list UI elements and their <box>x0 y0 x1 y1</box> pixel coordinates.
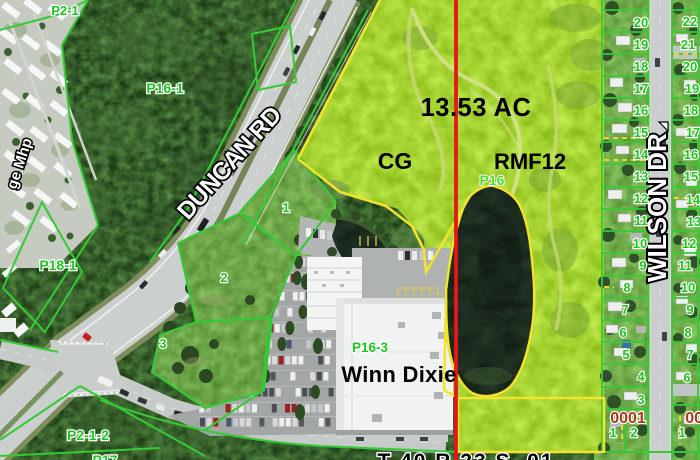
svg-text:10: 10 <box>681 280 695 295</box>
svg-text:CG: CG <box>378 148 413 174</box>
svg-text:15: 15 <box>634 125 648 140</box>
svg-text:P18-1: P18-1 <box>39 257 77 273</box>
svg-text:2: 2 <box>630 425 637 440</box>
svg-text:13.53 AC: 13.53 AC <box>421 94 532 122</box>
svg-text:20: 20 <box>634 15 648 30</box>
svg-text:7: 7 <box>686 347 693 362</box>
svg-text:17: 17 <box>686 125 700 140</box>
svg-text:16: 16 <box>684 147 698 162</box>
svg-text:8: 8 <box>684 325 691 340</box>
svg-text:17: 17 <box>634 81 648 96</box>
svg-text:2: 2 <box>220 270 227 285</box>
svg-text:20: 20 <box>683 59 697 74</box>
svg-text:12: 12 <box>682 236 696 251</box>
svg-text:6: 6 <box>619 325 626 340</box>
svg-text:3: 3 <box>637 392 644 407</box>
svg-text:Winn Dixie: Winn Dixie <box>341 362 456 387</box>
svg-text:0001: 0001 <box>610 410 646 427</box>
svg-text:1: 1 <box>678 425 685 440</box>
svg-text:10: 10 <box>633 236 647 251</box>
svg-text:18: 18 <box>684 103 698 118</box>
svg-text:18: 18 <box>634 59 648 74</box>
svg-text:P16: P16 <box>480 172 505 188</box>
svg-text:7: 7 <box>621 302 628 317</box>
svg-text:9: 9 <box>686 302 693 317</box>
svg-text:14: 14 <box>686 192 700 207</box>
svg-text:P16-1: P16-1 <box>146 80 184 96</box>
svg-text:15: 15 <box>684 169 698 184</box>
svg-text:0001: 0001 <box>685 410 700 427</box>
svg-text:P2-1-2: P2-1-2 <box>67 427 109 443</box>
svg-text:4: 4 <box>637 369 645 384</box>
svg-text:5: 5 <box>622 347 629 362</box>
svg-text:P16-3: P16-3 <box>352 340 389 355</box>
svg-text:21: 21 <box>681 37 695 52</box>
svg-text:16: 16 <box>634 103 648 118</box>
svg-text:19: 19 <box>685 81 699 96</box>
svg-text:P17: P17 <box>93 452 118 460</box>
svg-text:19: 19 <box>634 37 648 52</box>
svg-text:8: 8 <box>623 280 630 295</box>
svg-text:12: 12 <box>634 191 648 206</box>
svg-text:13: 13 <box>687 214 700 229</box>
svg-text:1: 1 <box>609 425 616 440</box>
svg-text:9: 9 <box>639 258 646 273</box>
svg-text:14: 14 <box>634 147 649 162</box>
svg-text:11: 11 <box>634 213 648 228</box>
svg-text:T 40 R 23 S 01: T 40 R 23 S 01 <box>377 450 554 460</box>
svg-text:13: 13 <box>634 169 648 184</box>
svg-text:11: 11 <box>678 258 692 273</box>
svg-text:RMF12: RMF12 <box>494 149 566 174</box>
svg-text:22: 22 <box>683 14 697 29</box>
svg-text:3: 3 <box>159 336 166 351</box>
svg-text:6: 6 <box>683 370 690 385</box>
svg-text:P2-1: P2-1 <box>51 3 78 18</box>
svg-text:1: 1 <box>282 200 289 215</box>
